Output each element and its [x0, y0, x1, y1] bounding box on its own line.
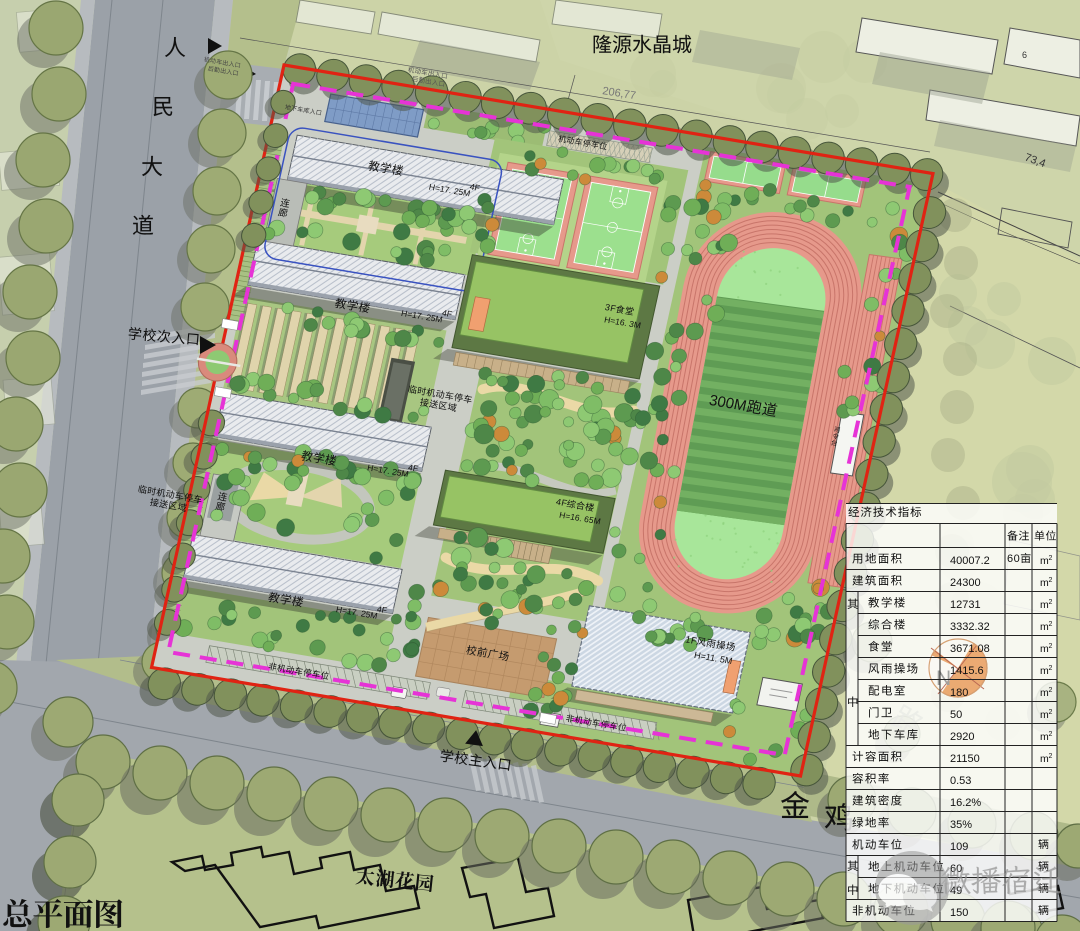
- svg-text:2: 2: [1049, 753, 1053, 760]
- svg-text:2: 2: [1049, 555, 1053, 562]
- svg-text:12731: 12731: [950, 599, 981, 611]
- svg-text:2: 2: [1049, 621, 1053, 628]
- svg-text:3671.08: 3671.08: [950, 643, 990, 655]
- svg-text:40007.2: 40007.2: [950, 555, 990, 567]
- svg-text:6: 6: [1022, 50, 1027, 60]
- svg-text:16.2%: 16.2%: [950, 797, 981, 809]
- svg-text:N: N: [936, 667, 951, 690]
- svg-text:60: 60: [950, 863, 962, 875]
- svg-text:4F: 4F: [441, 308, 453, 319]
- svg-text:2920: 2920: [950, 731, 974, 743]
- svg-text:180: 180: [950, 687, 968, 699]
- svg-text:2: 2: [1049, 687, 1053, 694]
- svg-text:3332.32: 3332.32: [950, 621, 990, 633]
- svg-text:0.53: 0.53: [950, 775, 971, 787]
- svg-text:21150: 21150: [950, 753, 980, 765]
- svg-text:6: 6: [1007, 553, 1013, 565]
- svg-text:1415.6: 1415.6: [950, 665, 984, 677]
- svg-text:2: 2: [1049, 709, 1053, 716]
- svg-text:2: 2: [1049, 665, 1053, 672]
- svg-text:0: 0: [1014, 553, 1020, 565]
- svg-text:4F: 4F: [376, 604, 388, 615]
- svg-text:24300: 24300: [950, 577, 981, 589]
- svg-text:4F: 4F: [407, 462, 419, 473]
- svg-text:50: 50: [950, 709, 962, 721]
- svg-text:150: 150: [950, 907, 968, 919]
- svg-text:2: 2: [1049, 731, 1053, 738]
- svg-text:2: 2: [1049, 577, 1053, 584]
- svg-text:2: 2: [1049, 599, 1053, 606]
- svg-text:35%: 35%: [950, 819, 972, 831]
- svg-text:4F: 4F: [469, 181, 481, 192]
- svg-text:109: 109: [950, 841, 968, 853]
- svg-text:2: 2: [1049, 643, 1053, 650]
